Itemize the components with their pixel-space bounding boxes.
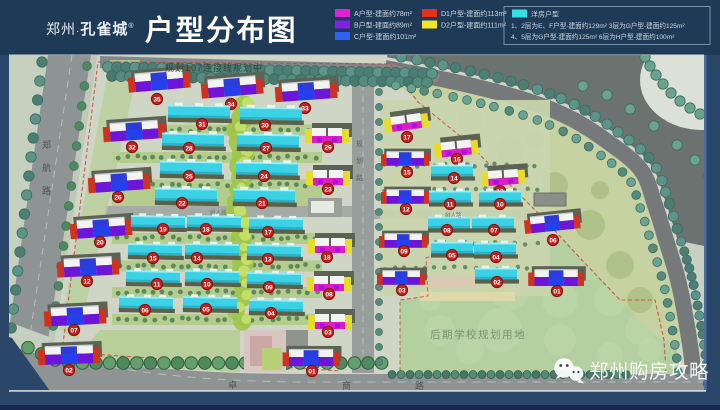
svg-text:树人路: 树人路 <box>210 209 227 217</box>
svg-text:21: 21 <box>258 200 266 207</box>
svg-text:02: 02 <box>65 367 73 374</box>
svg-text:14: 14 <box>450 175 458 182</box>
svg-text:28: 28 <box>185 145 193 152</box>
svg-text:树人路: 树人路 <box>445 211 462 219</box>
svg-text:洋房户型: 洋房户型 <box>531 10 559 19</box>
svg-text:16: 16 <box>453 156 461 163</box>
svg-text:05: 05 <box>448 252 456 259</box>
svg-text:13: 13 <box>264 256 272 263</box>
svg-text:路: 路 <box>415 380 424 391</box>
svg-text:郑航路: 郑航路 <box>41 139 51 209</box>
svg-text:06: 06 <box>141 307 149 314</box>
svg-text:04: 04 <box>492 254 500 261</box>
svg-text:26: 26 <box>114 194 122 201</box>
svg-text:02: 02 <box>493 279 501 286</box>
svg-text:郑州·孔雀城®: 郑州·孔雀城® <box>46 20 135 38</box>
svg-text:12: 12 <box>83 278 91 285</box>
svg-text:卓: 卓 <box>228 379 237 390</box>
svg-text:D2户型-建面约111m²: D2户型-建面约111m² <box>441 21 507 30</box>
svg-text:17: 17 <box>264 229 272 236</box>
svg-text:33: 33 <box>301 105 309 112</box>
svg-text:04: 04 <box>267 310 275 317</box>
svg-text:35: 35 <box>153 96 161 103</box>
svg-text:10: 10 <box>496 201 504 208</box>
svg-text:22: 22 <box>178 200 186 207</box>
svg-text:07: 07 <box>490 227 498 234</box>
svg-text:10: 10 <box>203 281 211 288</box>
svg-text:12: 12 <box>402 206 410 213</box>
svg-text:09: 09 <box>400 248 408 255</box>
svg-text:05: 05 <box>202 306 210 313</box>
svg-text:18: 18 <box>202 226 210 233</box>
svg-text:18: 18 <box>323 254 331 261</box>
svg-text:08: 08 <box>325 291 333 298</box>
svg-text:14: 14 <box>193 255 201 262</box>
svg-text:15: 15 <box>403 169 411 176</box>
svg-text:A户型-建面约78m²: A户型-建面约78m² <box>354 9 413 18</box>
svg-text:31: 31 <box>198 121 206 128</box>
svg-text:C户型-建面约101m²: C户型-建面约101m² <box>354 32 417 41</box>
svg-text:23: 23 <box>324 186 332 193</box>
svg-text:B户型-建面约89m²: B户型-建面约89m² <box>354 21 413 30</box>
svg-text:4、5层为G户型-建面约125m² 6层为H户型-建面约1: 4、5层为G户型-建面约125m² 6层为H户型-建面约100m² <box>511 32 675 41</box>
svg-text:规划107连接线规划中: 规划107连接线规划中 <box>165 62 263 73</box>
svg-text:15: 15 <box>149 255 157 262</box>
svg-text:1、2层为E、F户型-建面约129m² 3层为G户型-建面: 1、2层为E、F户型-建面约129m² 3层为G户型-建面约125m² <box>511 21 685 30</box>
svg-text:25: 25 <box>185 173 193 180</box>
svg-text:户型分布图: 户型分布图 <box>145 14 298 47</box>
svg-text:规划路: 规划路 <box>356 139 364 191</box>
svg-text:11: 11 <box>154 281 161 288</box>
svg-text:17: 17 <box>403 134 411 141</box>
svg-text:08: 08 <box>443 227 451 234</box>
svg-text:03: 03 <box>324 329 332 336</box>
svg-text:20: 20 <box>96 239 104 246</box>
svg-text:24: 24 <box>260 173 268 180</box>
svg-text:06: 06 <box>549 237 557 244</box>
svg-text:01: 01 <box>308 368 316 375</box>
svg-text:09: 09 <box>265 284 273 291</box>
svg-text:03: 03 <box>398 287 406 294</box>
svg-text:29: 29 <box>324 144 332 151</box>
svg-text:30: 30 <box>261 122 269 129</box>
svg-text:32: 32 <box>128 144 136 151</box>
svg-text:01: 01 <box>553 288 561 295</box>
svg-text:后期学校规划用地: 后期学校规划用地 <box>430 328 526 341</box>
svg-text:郑州购房攻略: 郑州购房攻略 <box>589 361 709 383</box>
svg-text:19: 19 <box>159 226 167 233</box>
svg-text:D1户型-建面约113m²: D1户型-建面约113m² <box>441 9 507 18</box>
svg-text:07: 07 <box>70 327 78 334</box>
svg-text:商: 商 <box>342 380 351 391</box>
svg-text:27: 27 <box>262 145 270 152</box>
svg-text:11: 11 <box>447 201 454 208</box>
